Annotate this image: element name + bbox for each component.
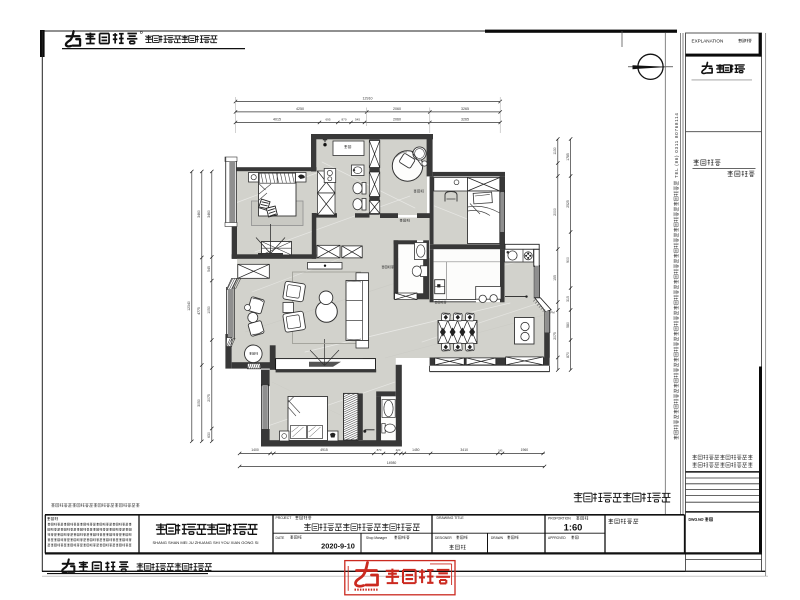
svg-text:4015: 4015: [273, 118, 281, 122]
svg-text:Shop Manager: Shop Manager: [366, 536, 388, 540]
svg-text:870: 870: [341, 118, 346, 122]
svg-text:2060: 2060: [393, 107, 401, 111]
svg-text:DWG.NO: DWG.NO: [689, 518, 704, 522]
svg-text:580: 580: [566, 322, 570, 328]
svg-text:1400: 1400: [251, 448, 259, 452]
svg-text:12340: 12340: [187, 301, 191, 311]
svg-text:DATE: DATE: [276, 536, 286, 540]
svg-text:4775: 4775: [197, 307, 201, 315]
svg-text:2075: 2075: [207, 394, 211, 402]
svg-text:1785: 1785: [566, 153, 570, 161]
svg-text:155: 155: [553, 275, 557, 281]
svg-text:3050: 3050: [197, 399, 201, 407]
svg-text:1:60: 1:60: [564, 522, 583, 533]
svg-text:PROPORTION: PROPORTION: [548, 517, 571, 521]
svg-text:14980: 14980: [387, 461, 397, 465]
svg-text:870: 870: [377, 448, 382, 452]
svg-text:2000: 2000: [553, 208, 557, 216]
svg-text:PM: PM: [551, 311, 556, 315]
svg-text:1130: 1130: [553, 147, 557, 154]
svg-text:1050: 1050: [207, 306, 211, 314]
svg-text:DRAWING TITLE: DRAWING TITLE: [437, 516, 465, 520]
svg-text:SHANG SHAN MEI JU ZHUANG SHI Y: SHANG SHAN MEI JU ZHUANG SHI YOU XIAN GO…: [152, 540, 258, 545]
svg-text:3460: 3460: [207, 210, 211, 218]
svg-text:APPROVED: APPROVED: [548, 536, 566, 540]
svg-text:1960: 1960: [521, 448, 529, 452]
svg-text:630: 630: [207, 432, 211, 438]
svg-text:EXPLANATION: EXPLANATION: [692, 38, 724, 43]
svg-text:545: 545: [355, 118, 360, 122]
svg-text:DRAWN: DRAWN: [491, 536, 504, 540]
svg-text:420: 420: [396, 448, 401, 452]
svg-text:4915: 4915: [320, 448, 328, 452]
svg-text:245: 245: [498, 448, 503, 452]
svg-text:12910: 12910: [363, 96, 373, 100]
svg-text:3410: 3410: [460, 448, 468, 452]
svg-text:TEL (86) 0311 80768114: TEL (86) 0311 80768114: [674, 112, 679, 178]
svg-text:3265: 3265: [461, 107, 469, 111]
svg-text:4250: 4250: [296, 107, 304, 111]
svg-text:DESIGNER: DESIGNER: [435, 536, 452, 540]
svg-text:3265: 3265: [461, 118, 469, 122]
svg-text:2075: 2075: [553, 332, 557, 340]
svg-text:2020-9-10: 2020-9-10: [321, 541, 355, 550]
svg-text:PROJECT: PROJECT: [276, 516, 292, 520]
svg-text:695: 695: [325, 118, 330, 122]
svg-text:1450: 1450: [412, 448, 420, 452]
svg-text:3460: 3460: [197, 210, 201, 218]
svg-text:315: 315: [566, 296, 570, 302]
svg-text:2525: 2525: [566, 200, 570, 208]
svg-text:2060: 2060: [393, 118, 401, 122]
svg-text:545: 545: [207, 266, 211, 272]
svg-text:900: 900: [566, 257, 570, 263]
svg-text:870: 870: [566, 352, 570, 358]
